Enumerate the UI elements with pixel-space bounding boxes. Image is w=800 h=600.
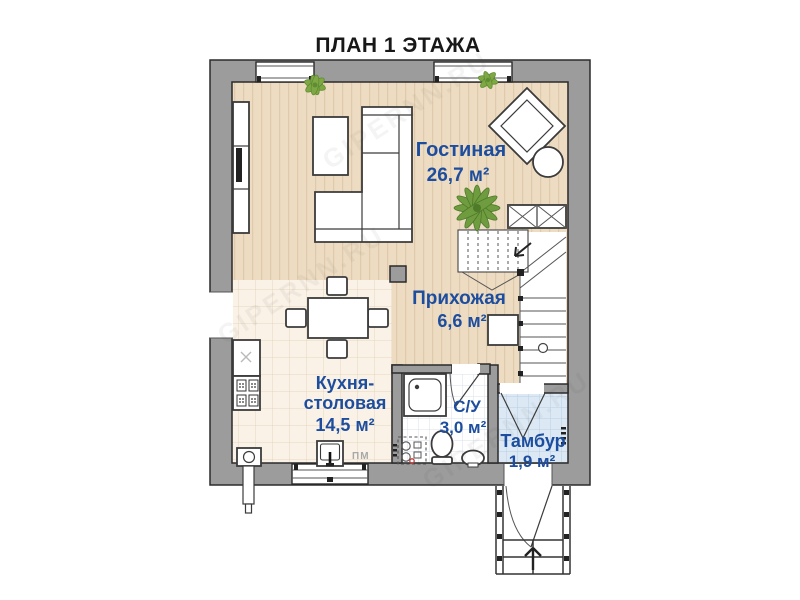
window-living-left	[256, 62, 314, 82]
living-room-area: 26,7 м²	[427, 165, 490, 186]
chair	[368, 309, 388, 327]
chair	[327, 340, 347, 358]
porch-up-arrow	[525, 548, 541, 570]
floor-plan-canvas: ПЛАН 1 ЭТАЖА	[0, 0, 800, 600]
chair	[286, 309, 306, 327]
entrance-door	[504, 464, 552, 547]
vestibule-area: 1,9 м²	[509, 452, 556, 471]
room-label-kitchen: Кухня- столовая 14,5 м²	[304, 373, 387, 435]
entry-porch	[496, 486, 570, 574]
towel-radiator	[393, 444, 397, 457]
understairs-cabinet	[488, 315, 518, 345]
stair-newel-circle	[539, 344, 548, 353]
chimney-pipe	[243, 466, 254, 504]
bathroom-name: С/У	[453, 397, 481, 416]
wall-stub-kitchen-hall	[390, 266, 406, 282]
tv-icon	[236, 148, 242, 182]
floor-plan-page: ПЛАН 1 ЭТАЖА	[0, 0, 800, 600]
kitchen-sink-unit	[233, 340, 260, 376]
wardrobe	[508, 205, 566, 228]
stove	[233, 376, 260, 410]
dishwasher-label: ПМ	[352, 451, 370, 462]
tv-unit	[233, 102, 249, 233]
hall-area: 6,6 м²	[437, 311, 486, 331]
page-title: ПЛАН 1 ЭТАЖА	[315, 34, 480, 57]
bathroom-top-wall	[392, 365, 452, 373]
hall-name: Прихожая	[412, 288, 506, 309]
bathroom-left-wall	[392, 365, 402, 463]
dining-table	[308, 298, 368, 338]
shower-tray	[404, 374, 446, 416]
round-side-table	[533, 147, 563, 177]
living-room-name: Гостиная	[416, 139, 506, 161]
kitchen-area: 14,5 м²	[315, 415, 374, 435]
window-kitchen-bottom	[292, 464, 368, 484]
kitchen-name-line2: столовая	[304, 393, 387, 413]
kitchen-name-line1: Кухня-	[316, 373, 375, 393]
dishwasher	[317, 441, 343, 467]
